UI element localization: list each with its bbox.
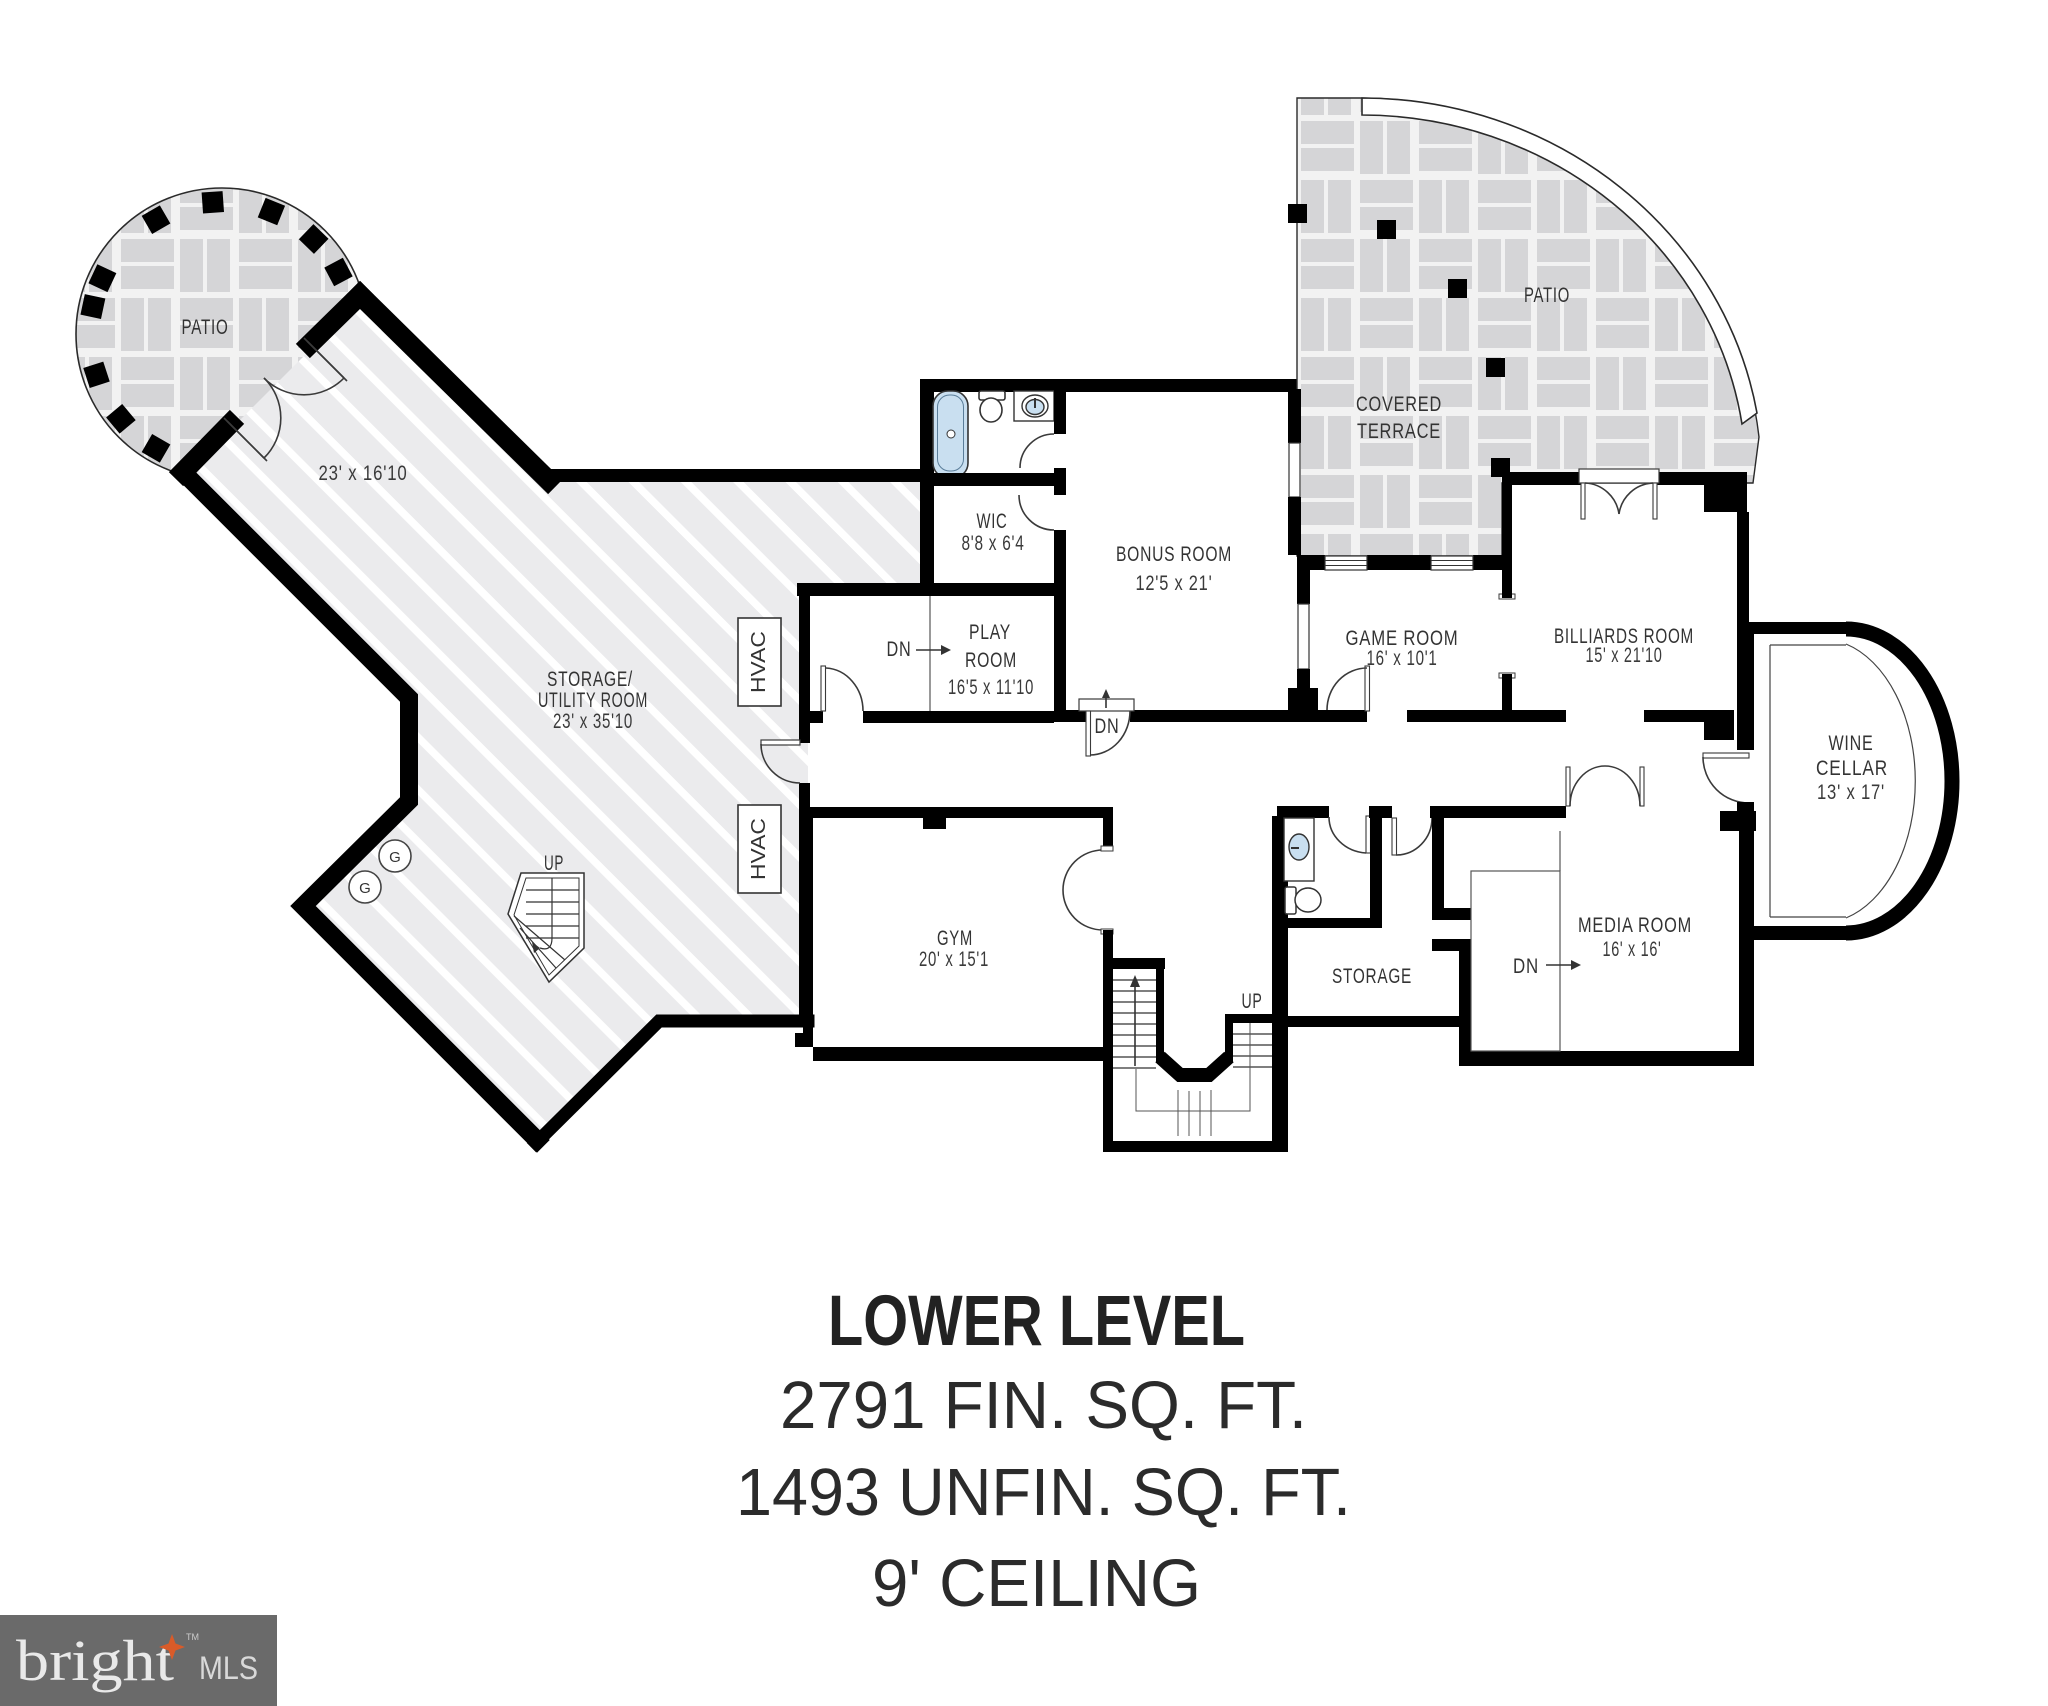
svg-text:CELLAR: CELLAR	[1816, 757, 1888, 780]
svg-text:16'5 x 11'10: 16'5 x 11'10	[948, 676, 1034, 699]
svg-text:15' x 21'10: 15' x 21'10	[1586, 644, 1663, 667]
svg-text:LOWER LEVEL: LOWER LEVEL	[828, 1282, 1245, 1361]
svg-text:MLS: MLS	[199, 1650, 258, 1686]
svg-text:TM: TM	[186, 1632, 199, 1642]
svg-text:20' x 15'1: 20' x 15'1	[919, 948, 989, 971]
svg-text:13' x 17': 13' x 17'	[1817, 781, 1885, 804]
svg-text:PLAY: PLAY	[969, 621, 1011, 644]
svg-text:DN: DN	[887, 638, 912, 661]
svg-text:STORAGE: STORAGE	[1332, 965, 1412, 988]
svg-text:8'8 x 6'4: 8'8 x 6'4	[962, 532, 1025, 555]
svg-text:16' x 16': 16' x 16'	[1603, 938, 1662, 961]
svg-text:ROOM: ROOM	[965, 649, 1017, 672]
svg-text:DN: DN	[1513, 955, 1539, 978]
svg-text:G: G	[389, 849, 401, 866]
svg-text:UP: UP	[544, 852, 564, 875]
svg-text:16' x 10'1: 16' x 10'1	[1367, 647, 1438, 670]
svg-text:23' x 16'10: 23' x 16'10	[319, 462, 408, 485]
svg-text:PATIO: PATIO	[182, 316, 229, 339]
svg-text:UP: UP	[1242, 990, 1263, 1013]
svg-text:23' x 35'10: 23' x 35'10	[553, 710, 633, 733]
svg-text:HVAC: HVAC	[748, 631, 770, 693]
svg-text:STORAGE/: STORAGE/	[547, 668, 633, 691]
svg-text:COVERED: COVERED	[1356, 393, 1442, 416]
svg-text:12'5 x 21': 12'5 x 21'	[1136, 572, 1213, 595]
svg-text:1493 UNFIN. SQ. FT.: 1493 UNFIN. SQ. FT.	[736, 1455, 1351, 1530]
svg-text:TERRACE: TERRACE	[1357, 420, 1441, 443]
svg-text:bright: bright	[16, 1628, 174, 1693]
svg-text:DN: DN	[1095, 715, 1120, 738]
svg-text:9' CEILING: 9' CEILING	[872, 1546, 1201, 1621]
svg-text:2791 FIN. SQ. FT.: 2791 FIN. SQ. FT.	[780, 1368, 1307, 1443]
svg-text:WINE: WINE	[1829, 732, 1874, 755]
svg-text:GYM: GYM	[937, 927, 973, 950]
svg-text:G: G	[359, 880, 371, 897]
svg-text:BONUS ROOM: BONUS ROOM	[1116, 543, 1232, 566]
svg-text:UTILITY ROOM: UTILITY ROOM	[538, 689, 648, 712]
svg-text:MEDIA ROOM: MEDIA ROOM	[1578, 914, 1692, 937]
svg-text:PATIO: PATIO	[1524, 284, 1570, 307]
svg-text:HVAC: HVAC	[748, 818, 770, 880]
svg-text:WIC: WIC	[977, 510, 1008, 533]
